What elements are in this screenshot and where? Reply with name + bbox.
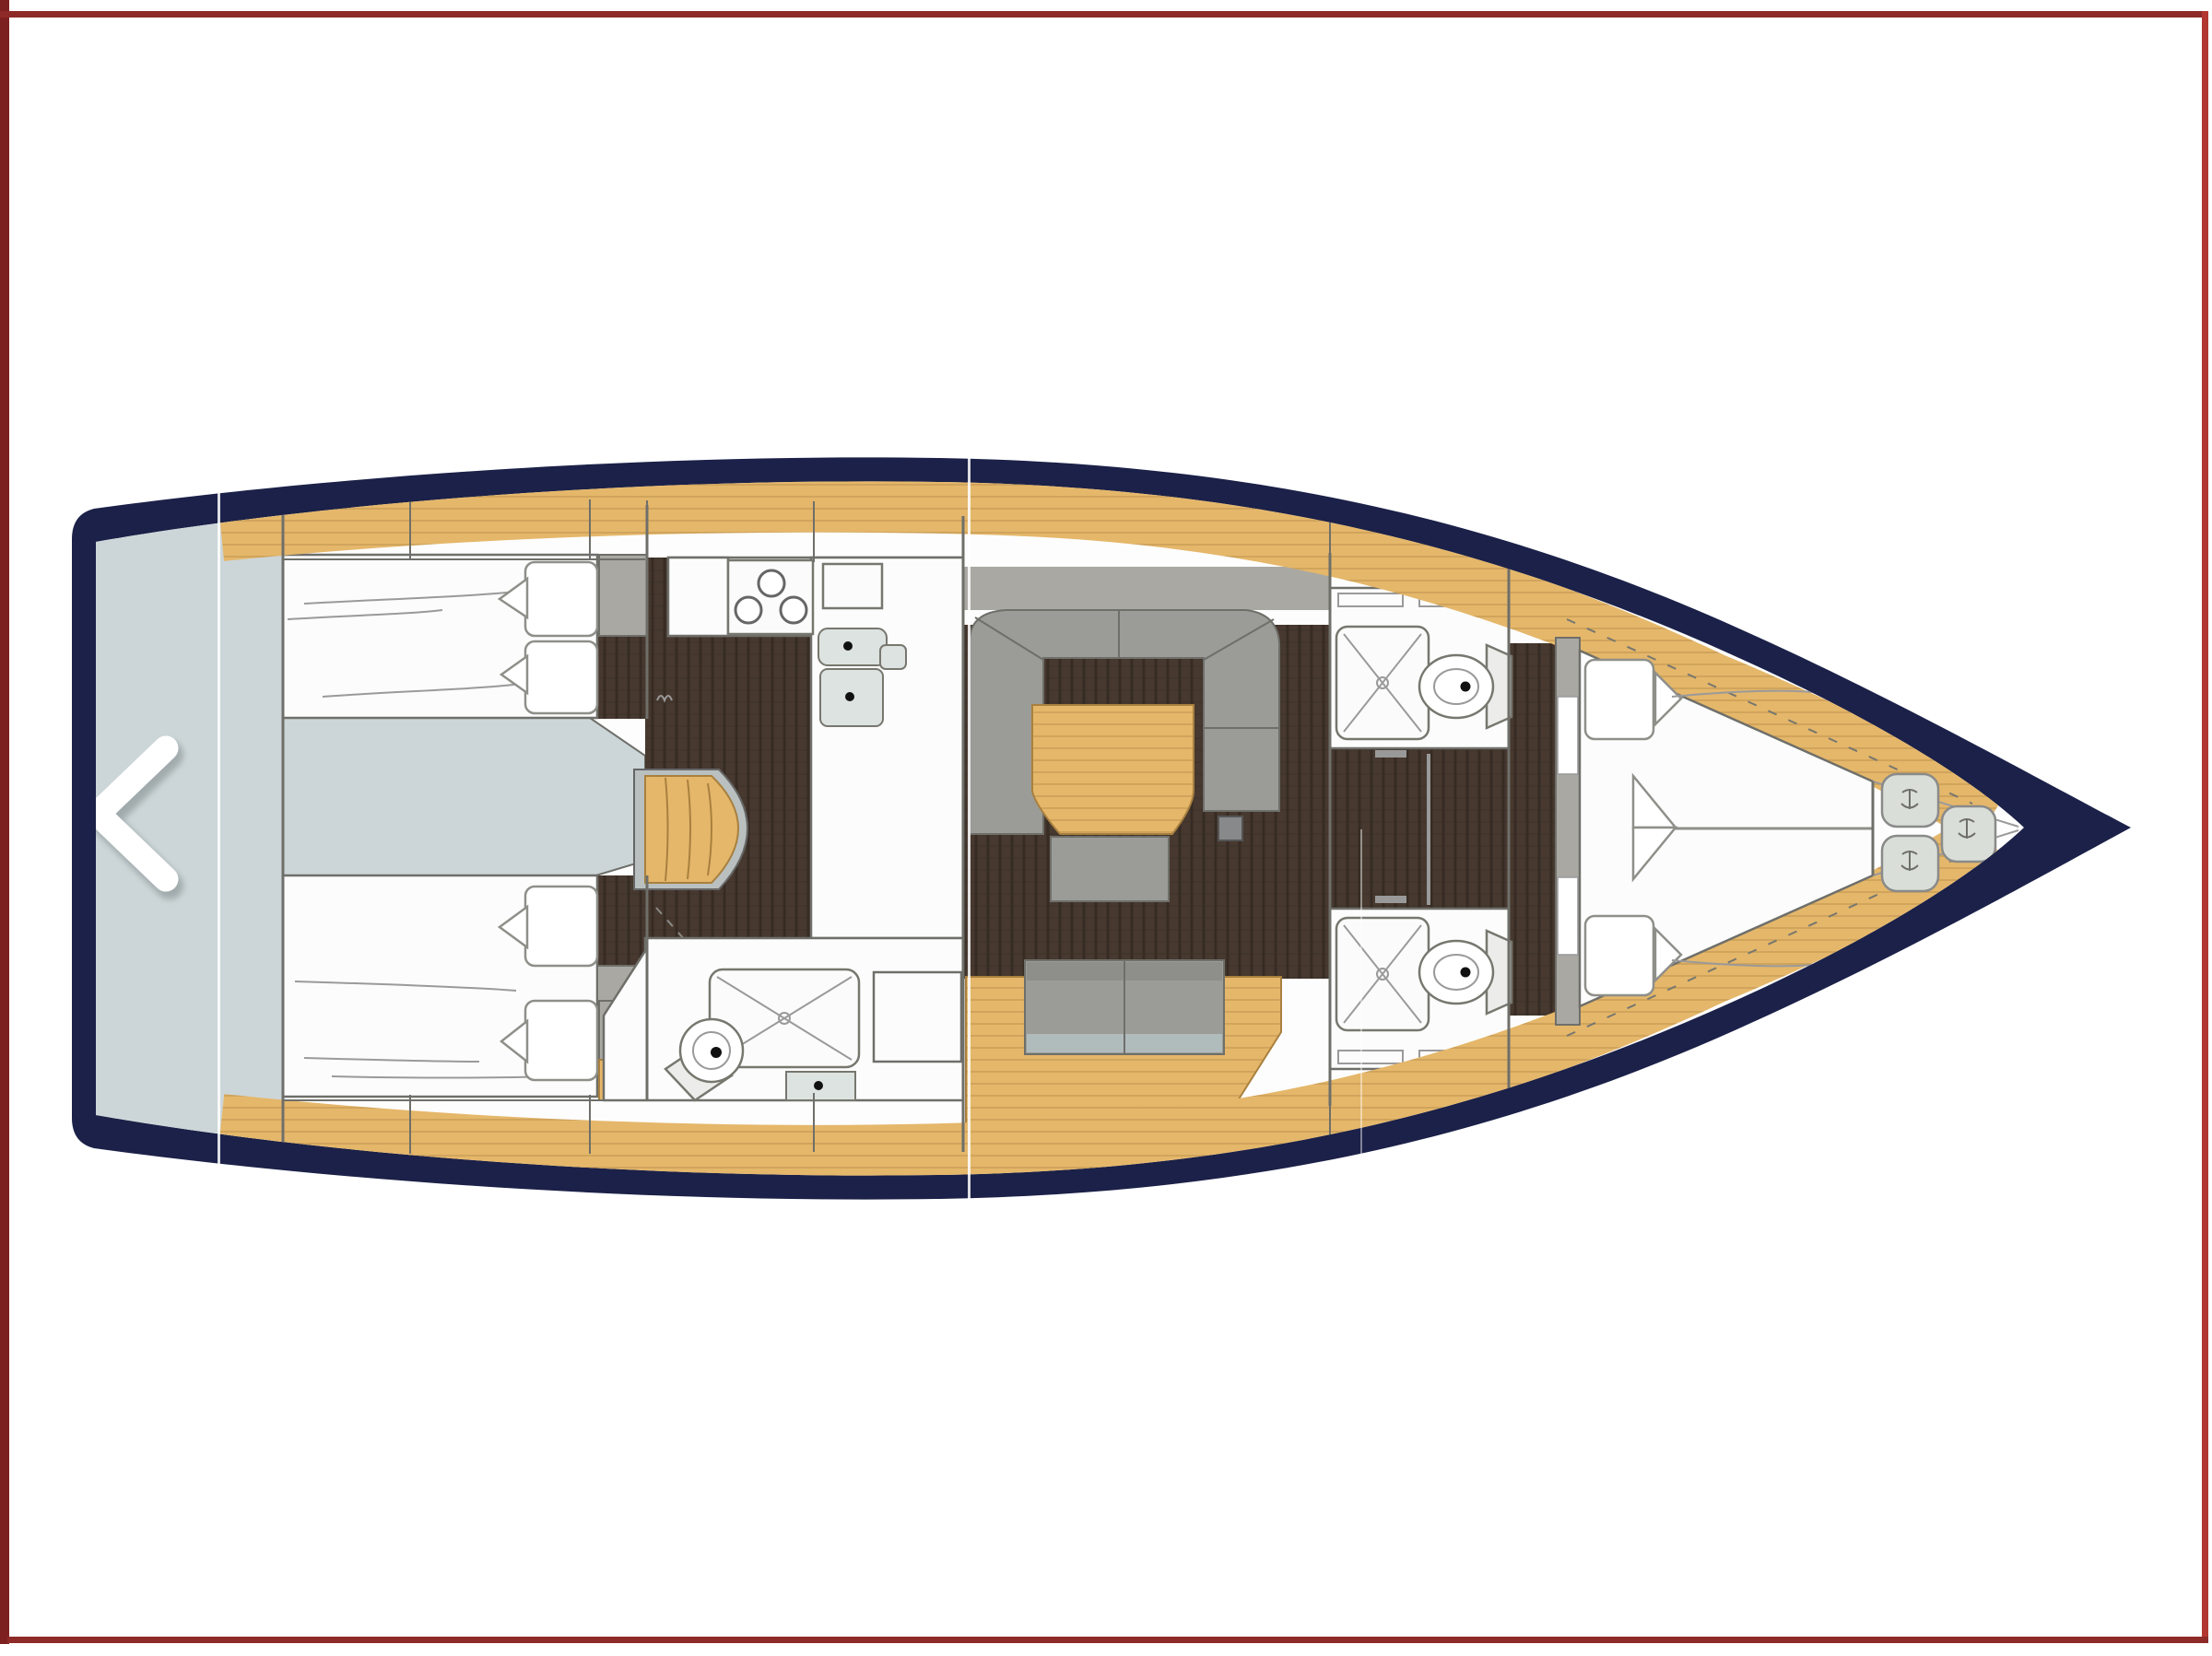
locker-bin bbox=[1942, 806, 1995, 862]
headboard-trim bbox=[1556, 638, 1580, 1025]
drain bbox=[845, 692, 854, 701]
sideboard bbox=[963, 567, 1330, 610]
mast-post bbox=[1218, 816, 1242, 840]
counter-corner bbox=[668, 558, 728, 636]
burner bbox=[781, 597, 806, 623]
galley-counter-side bbox=[811, 558, 963, 938]
carousel-photo-boat-floorplan bbox=[0, 0, 2212, 1656]
pillow bbox=[525, 641, 597, 713]
pillow bbox=[525, 562, 597, 636]
cubby bbox=[1558, 877, 1578, 955]
door-handle bbox=[1375, 750, 1406, 758]
head-cabinet bbox=[874, 972, 961, 1062]
frame-right-line bbox=[2202, 11, 2208, 1638]
drain bbox=[843, 641, 853, 651]
aft-cabin-starboard bbox=[283, 875, 647, 1100]
sink-basin bbox=[818, 628, 887, 665]
burner bbox=[759, 570, 784, 596]
frame-bottom-line bbox=[7, 1637, 2208, 1643]
cockpit-engine-space bbox=[283, 718, 645, 877]
pillow bbox=[525, 887, 597, 966]
frame-top-line bbox=[0, 11, 2208, 18]
wardrobe bbox=[599, 555, 647, 636]
pillow bbox=[1585, 660, 1653, 739]
burner bbox=[735, 597, 761, 623]
floorplan-drawing bbox=[0, 0, 2212, 1656]
faucet bbox=[880, 645, 906, 669]
toilet-bowl bbox=[1419, 655, 1493, 718]
frame-left-bar bbox=[0, 0, 9, 1644]
aft-head bbox=[604, 938, 963, 1100]
door-handle bbox=[1375, 896, 1406, 903]
toilet-bowl bbox=[1419, 941, 1493, 1004]
pillow bbox=[525, 1001, 597, 1080]
salon-stool bbox=[1051, 837, 1169, 901]
aft-cabin-port bbox=[283, 555, 647, 718]
fridge-lid bbox=[823, 564, 882, 608]
cubby bbox=[1558, 697, 1578, 774]
pillow bbox=[1585, 916, 1653, 995]
